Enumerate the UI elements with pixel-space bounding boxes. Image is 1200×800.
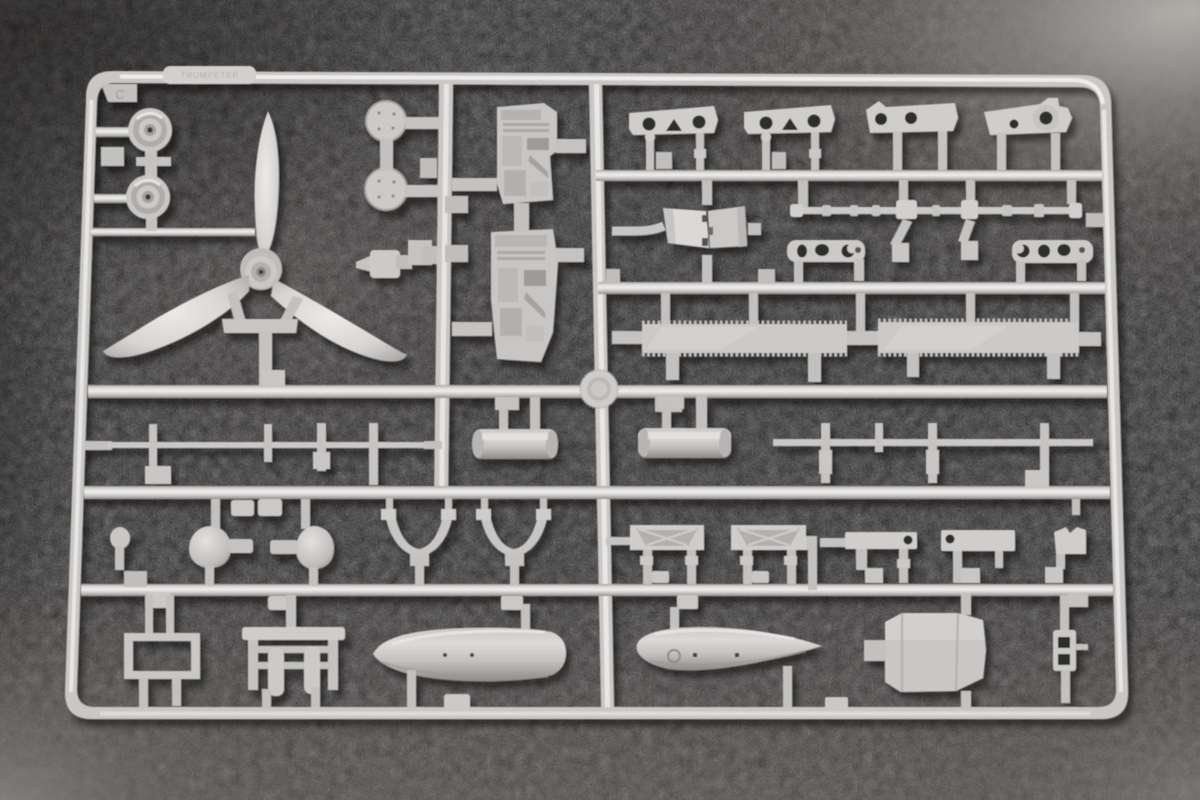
svg-text:C: C <box>115 87 124 102</box>
svg-text:TRUMPETER: TRUMPETER <box>181 71 240 80</box>
